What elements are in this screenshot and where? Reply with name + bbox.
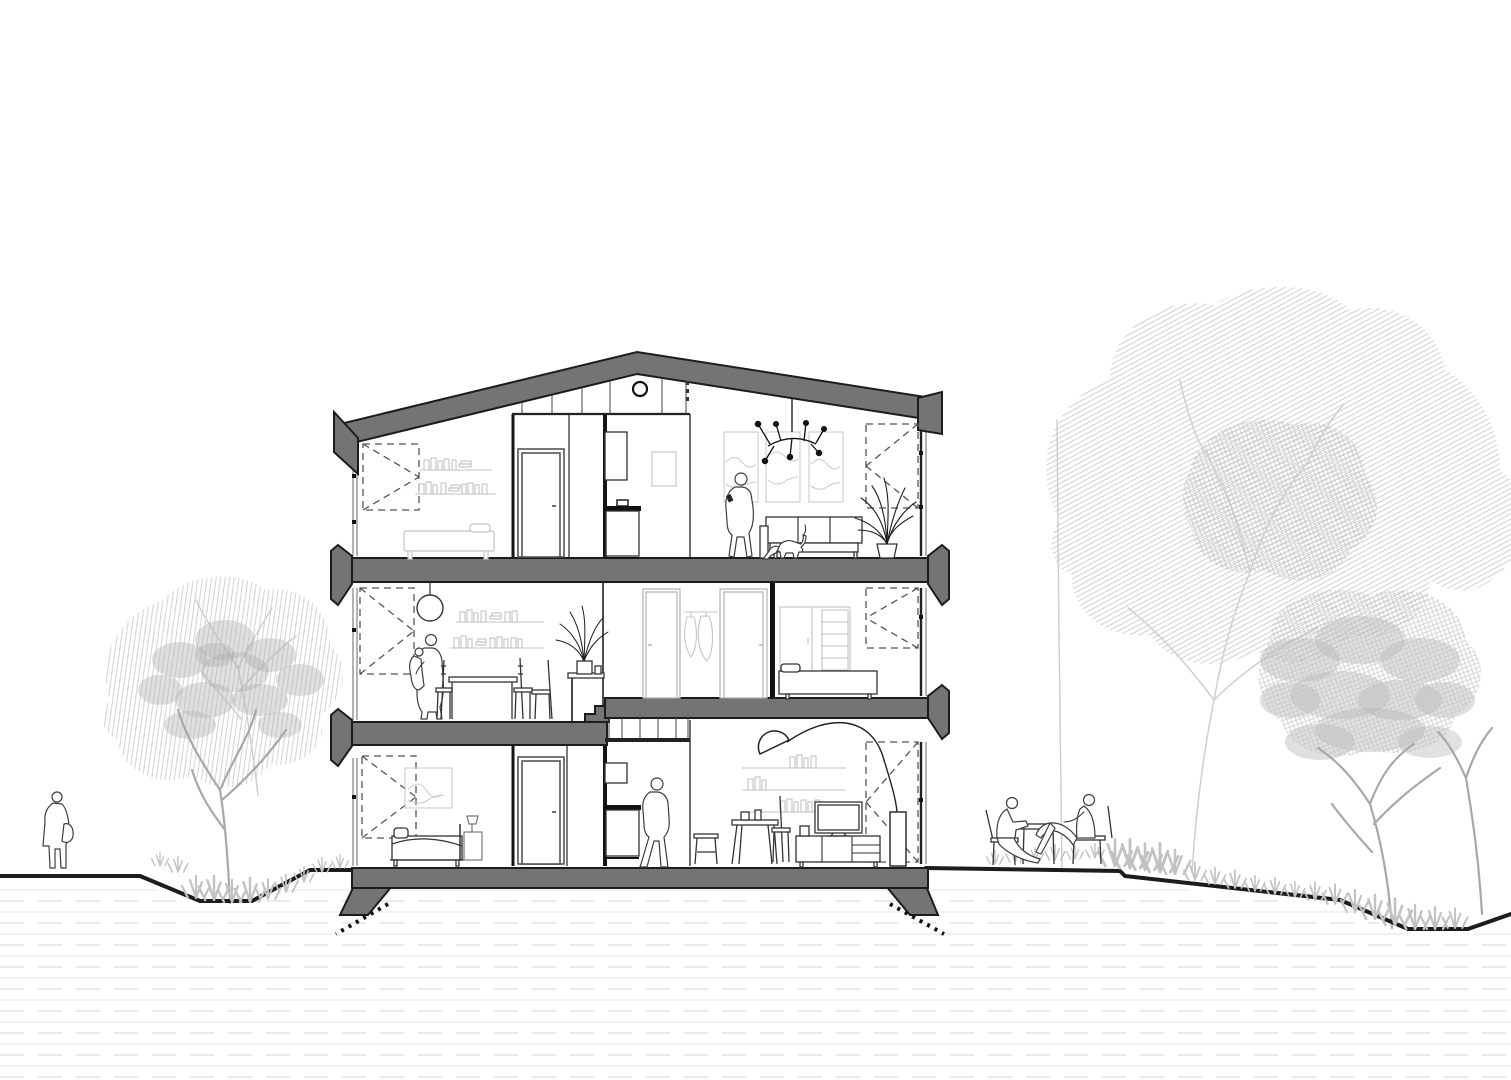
- bed: [404, 524, 494, 559]
- left-tree-group: [102, 577, 343, 903]
- grass-tuft: [1245, 876, 1265, 891]
- door: [518, 757, 564, 864]
- grass-tuft: [1224, 870, 1246, 888]
- slab-middle-left: [352, 722, 607, 745]
- roof: [334, 352, 942, 474]
- adult-carrying-child: [410, 635, 444, 720]
- casement-window-symbol: [866, 588, 918, 648]
- grass-tuft: [332, 855, 349, 868]
- grass-tuft: [218, 880, 246, 902]
- grass-tuft: [313, 858, 331, 872]
- slab-cap-right-1: [928, 545, 949, 605]
- architectural-section-canvas: Cross-section of a three-storey split-le…: [0, 0, 1511, 1080]
- high-cabinet: [605, 763, 627, 783]
- grass-tuft: [199, 876, 230, 900]
- grass-tuft: [987, 851, 1004, 864]
- slab-cap-left-2: [331, 709, 352, 766]
- grass-tuft: [1322, 884, 1347, 904]
- palm-on-counter: [556, 606, 608, 721]
- slab-middle-right: [605, 698, 928, 718]
- far-right-tree-trunk: [1438, 728, 1492, 914]
- book-shelves: [415, 458, 496, 494]
- pendant-globe-lamp: [417, 582, 443, 621]
- roof-band: [336, 352, 938, 447]
- nightstand-with-lamp: [464, 816, 482, 860]
- handbag: [62, 824, 73, 843]
- grass-tuft: [1442, 908, 1467, 928]
- dining-table-and-chairs: [436, 658, 552, 719]
- seated-person-right: [1036, 795, 1095, 855]
- grass-tuft: [1265, 878, 1286, 895]
- ground-floor-living-room: [732, 723, 906, 867]
- washstand-cabinet: [603, 500, 641, 558]
- grass-tuft: [1067, 846, 1084, 859]
- palm-plant: [855, 478, 916, 558]
- door: [643, 589, 680, 698]
- middle-floor-bedroom: [779, 607, 877, 699]
- grass-tuft: [1205, 868, 1226, 885]
- stool: [694, 834, 718, 864]
- high-cabinet: [605, 432, 627, 480]
- slab-cap-left-1: [331, 545, 352, 605]
- transom-glazing: [605, 718, 690, 742]
- grass-tuft: [1360, 895, 1391, 919]
- foundation-slab: [352, 868, 928, 888]
- slab-cap-right-2: [928, 685, 949, 739]
- roof-cap-right: [918, 392, 942, 434]
- middle-floor-dining-room: [410, 582, 608, 721]
- casement-window-symbol: [866, 424, 918, 508]
- top-floor-bedroom: [404, 458, 496, 559]
- daybed: [779, 664, 877, 699]
- subsurface-hatch: [0, 890, 1511, 1077]
- seated-person-left: [997, 798, 1040, 864]
- grass-tuft: [152, 853, 169, 866]
- wardrobe: [780, 607, 850, 672]
- coffee-table: [732, 810, 778, 864]
- door: [518, 449, 564, 557]
- framed-picture: [652, 452, 676, 486]
- glazing-hinge-marks: [352, 451, 923, 802]
- top-floor-hallway: [518, 432, 676, 558]
- tv: [815, 802, 862, 833]
- grass-tuft: [1304, 882, 1326, 900]
- top-floor-living-room: [724, 399, 916, 559]
- facade-glazing-lines: [352, 424, 926, 866]
- casement-window-symbol: [363, 444, 419, 510]
- ridge-vent-marks: [686, 381, 689, 401]
- porthole-window: [633, 382, 647, 396]
- grass-tuft: [182, 876, 210, 898]
- slab-top-floor: [352, 558, 928, 582]
- middle-floor-hallway: [643, 589, 767, 698]
- grass-tuft: [1378, 899, 1412, 925]
- standing-person: [726, 473, 754, 557]
- bed: [390, 824, 464, 866]
- book-shelves: [450, 610, 544, 648]
- grass-tuft: [168, 857, 188, 872]
- casement-window-symbol: [360, 588, 414, 674]
- person-standing-left: [43, 792, 73, 868]
- framed-picture: [405, 768, 452, 808]
- counter-cabinet: [603, 805, 641, 858]
- walking-person: [640, 778, 669, 867]
- right-small-tree-foliage: [1259, 590, 1482, 760]
- ground-floor-hallway: [603, 763, 718, 867]
- hanging-clothes: [684, 612, 718, 661]
- grass-tuft: [1285, 882, 1305, 897]
- door: [720, 589, 767, 698]
- right-tree-group: [1046, 287, 1511, 928]
- grass-tuft: [1421, 907, 1449, 929]
